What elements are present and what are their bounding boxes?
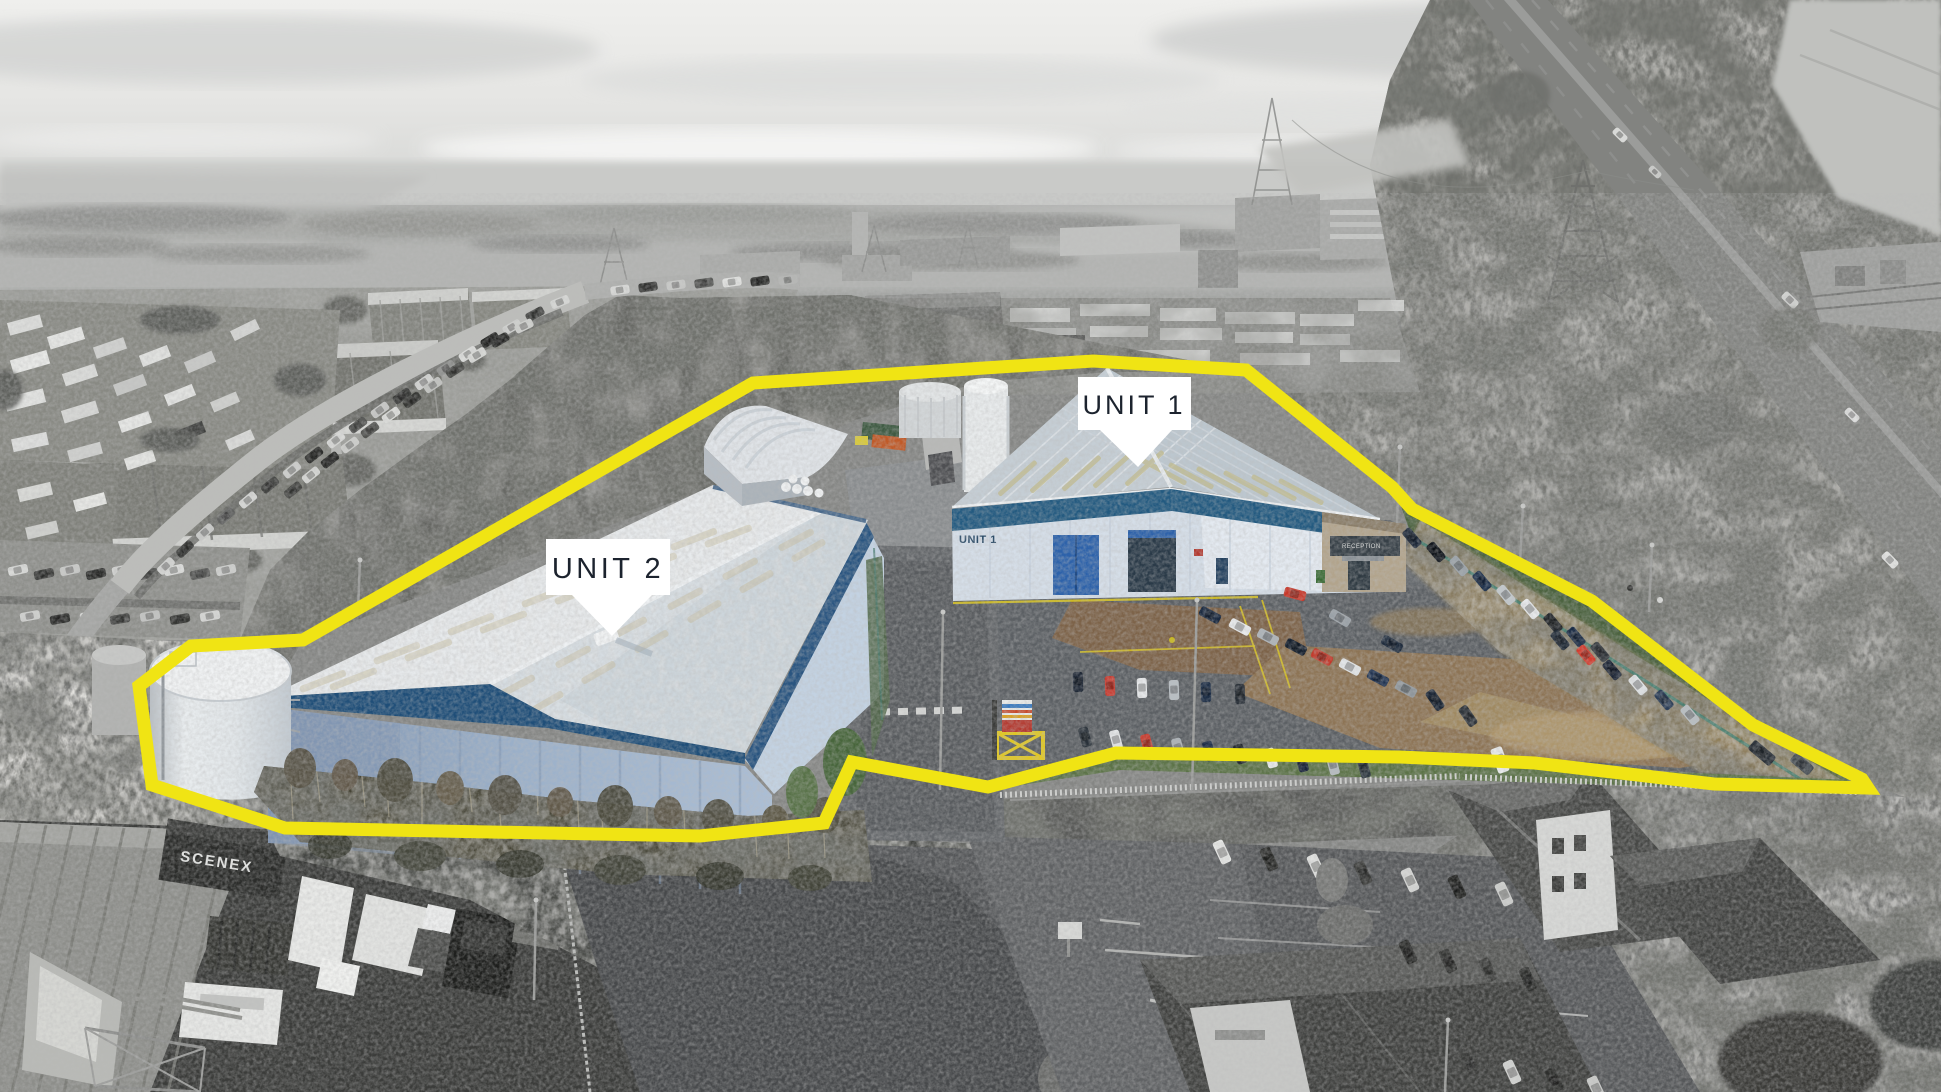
svg-text:UNIT 1: UNIT 1 (1082, 390, 1185, 420)
svg-text:UNIT 2: UNIT 2 (552, 553, 664, 585)
